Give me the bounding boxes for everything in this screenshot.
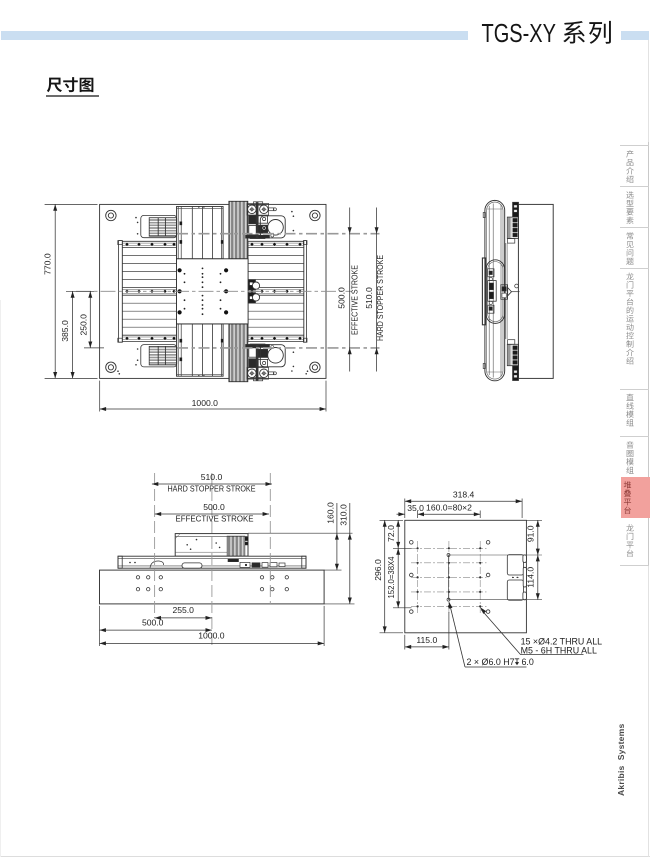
svg-text:250.0: 250.0 — [78, 314, 88, 336]
svg-text:EFFECTIVE STROKE: EFFECTIVE STROKE — [176, 514, 254, 524]
svg-text:296.0: 296.0 — [373, 559, 383, 581]
svg-text:TGS-XY: TGS-XY — [482, 20, 557, 48]
svg-text:1000.0: 1000.0 — [192, 398, 219, 408]
svg-text:HARD STOPPER STROKE: HARD STOPPER STROKE — [375, 255, 385, 341]
svg-text:72.0: 72.0 — [386, 525, 396, 542]
svg-text:HARD STOPPER STROKE: HARD STOPPER STROKE — [168, 484, 256, 494]
svg-text:114.0: 114.0 — [526, 567, 536, 588]
svg-text:2 × Ø6.0 H7: 2 × Ø6.0 H7 — [467, 657, 515, 667]
svg-text:115.0: 115.0 — [416, 635, 437, 645]
svg-text:EFFECTIVE STROKE: EFFECTIVE STROKE — [349, 265, 359, 335]
svg-text:1000.0: 1000.0 — [198, 631, 225, 641]
svg-text:385.0: 385.0 — [60, 320, 70, 342]
svg-text:152.0=38X4: 152.0=38X4 — [386, 556, 396, 598]
svg-text:770.0: 770.0 — [43, 253, 53, 275]
svg-text:500.0: 500.0 — [203, 502, 225, 512]
svg-text:91.0: 91.0 — [526, 525, 536, 542]
svg-text:6.0: 6.0 — [522, 657, 534, 667]
svg-text:510.0: 510.0 — [201, 472, 223, 482]
svg-text:35.0: 35.0 — [407, 503, 424, 513]
svg-text:318.4: 318.4 — [453, 490, 475, 500]
svg-text:255.0: 255.0 — [172, 605, 194, 615]
svg-text:310.0: 310.0 — [339, 504, 349, 526]
svg-text:M5 - 6H THRU ALL: M5 - 6H THRU ALL — [521, 645, 597, 655]
svg-text:500.0: 500.0 — [337, 287, 347, 309]
svg-text:160.0: 160.0 — [325, 502, 335, 524]
svg-text:510.0: 510.0 — [364, 287, 374, 309]
svg-text:500.0: 500.0 — [142, 617, 164, 627]
svg-text:160.0=80×2: 160.0=80×2 — [426, 502, 472, 512]
